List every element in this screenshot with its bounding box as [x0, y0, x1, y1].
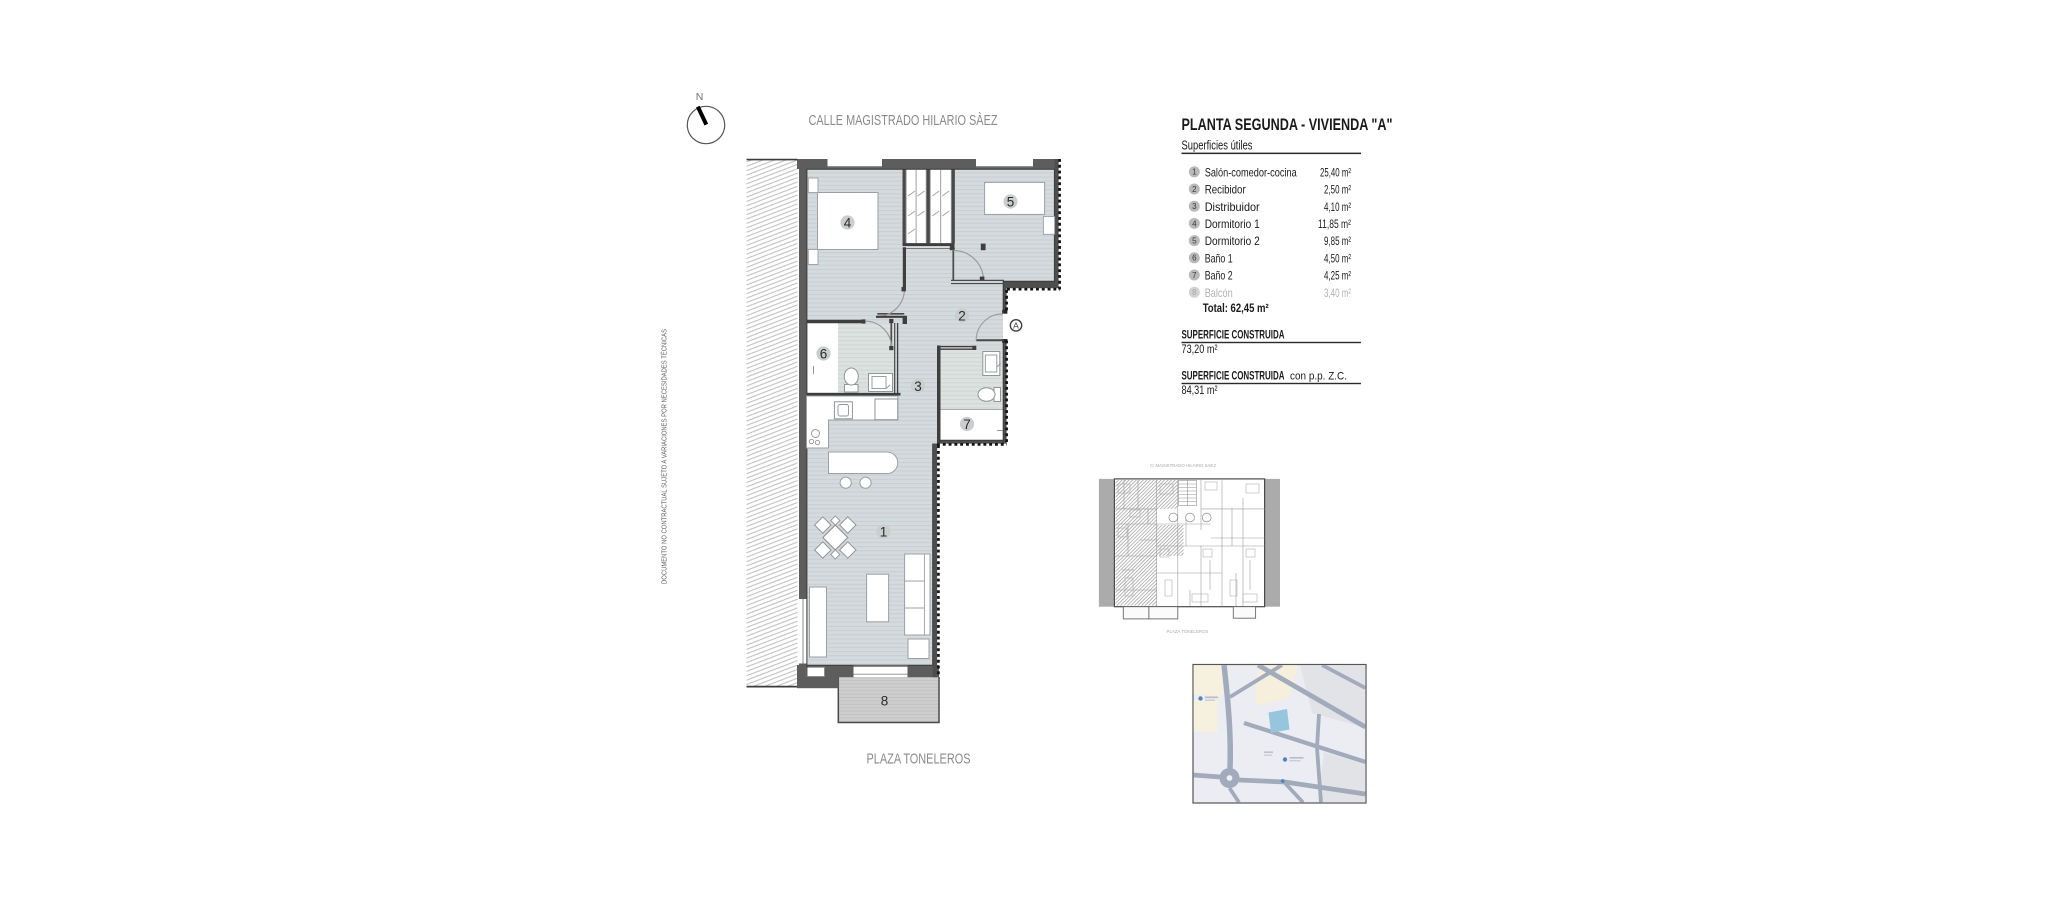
- svg-text:1: 1: [880, 524, 888, 539]
- svg-text:7: 7: [963, 417, 971, 432]
- svg-text:Total: 62,45 m²: Total: 62,45 m²: [1203, 301, 1269, 315]
- svg-text:84,31 m²: 84,31 m²: [1182, 383, 1218, 397]
- svg-text:8: 8: [1192, 288, 1197, 297]
- svg-text:4,50 m²: 4,50 m²: [1324, 251, 1351, 265]
- svg-text:2: 2: [958, 308, 966, 323]
- svg-text:4: 4: [844, 215, 852, 230]
- svg-text:4: 4: [1192, 219, 1197, 228]
- svg-text:5: 5: [1192, 237, 1197, 246]
- svg-text:Distribuidor: Distribuidor: [1205, 200, 1260, 214]
- svg-text:Salón-comedor-cocina: Salón-comedor-cocina: [1205, 165, 1297, 179]
- svg-text:6: 6: [1192, 254, 1197, 263]
- svg-text:2: 2: [1192, 185, 1197, 194]
- svg-text:7: 7: [1192, 271, 1197, 280]
- svg-text:11,85 m²: 11,85 m²: [1318, 217, 1351, 231]
- svg-text:Superficies útiles: Superficies útiles: [1182, 138, 1253, 153]
- svg-text:4,25 m²: 4,25 m²: [1324, 269, 1351, 283]
- svg-text:CALLE MAGISTRADO HILARIO SÀEZ: CALLE MAGISTRADO HILARIO SÀEZ: [809, 112, 998, 129]
- svg-text:25,40 m²: 25,40 m²: [1320, 165, 1351, 179]
- svg-text:2,50 m²: 2,50 m²: [1324, 183, 1351, 197]
- svg-text:N: N: [696, 91, 704, 103]
- svg-text:C/ MAGISTRADO HILARIO SAEZ: C/ MAGISTRADO HILARIO SAEZ: [1150, 463, 1216, 468]
- svg-text:1: 1: [1192, 168, 1197, 177]
- svg-text:3: 3: [1192, 202, 1197, 211]
- svg-text:4,10 m²: 4,10 m²: [1324, 200, 1351, 214]
- svg-text:PLAZA TONELEROS: PLAZA TONELEROS: [1167, 629, 1209, 634]
- svg-text:SUPERFICIE CONSTRUIDA: SUPERFICIE CONSTRUIDA: [1182, 369, 1285, 383]
- svg-text:PLAZA TONELEROS: PLAZA TONELEROS: [867, 751, 971, 768]
- svg-text:6: 6: [820, 346, 828, 361]
- svg-text:3: 3: [914, 379, 922, 394]
- svg-text:A: A: [1013, 321, 1019, 331]
- svg-text:DOCUMENTO NO CONTRACTUAL SUJET: DOCUMENTO NO CONTRACTUAL SUJETO A VARIAC…: [660, 329, 669, 584]
- svg-text:PLANTA SEGUNDA - VIVIENDA "A": PLANTA SEGUNDA - VIVIENDA "A": [1182, 115, 1393, 134]
- svg-text:3,40 m²: 3,40 m²: [1324, 286, 1351, 300]
- svg-text:73,20 m²: 73,20 m²: [1182, 342, 1218, 356]
- svg-text:5: 5: [1007, 194, 1015, 209]
- svg-text:Balcón: Balcón: [1205, 286, 1233, 300]
- svg-text:Baño 2: Baño 2: [1205, 269, 1233, 283]
- svg-text:Baño 1: Baño 1: [1205, 251, 1233, 265]
- svg-text:Dormitorio 1: Dormitorio 1: [1205, 217, 1260, 231]
- svg-text:SUPERFICIE CONSTRUIDA: SUPERFICIE CONSTRUIDA: [1182, 328, 1285, 342]
- svg-text:8: 8: [881, 694, 889, 709]
- svg-text:Recibidor: Recibidor: [1205, 183, 1246, 197]
- svg-text:Dormitorio 2: Dormitorio 2: [1205, 234, 1260, 248]
- svg-text:con p.p. Z.C.: con p.p. Z.C.: [1290, 371, 1347, 383]
- svg-text:9,85 m²: 9,85 m²: [1324, 234, 1351, 248]
